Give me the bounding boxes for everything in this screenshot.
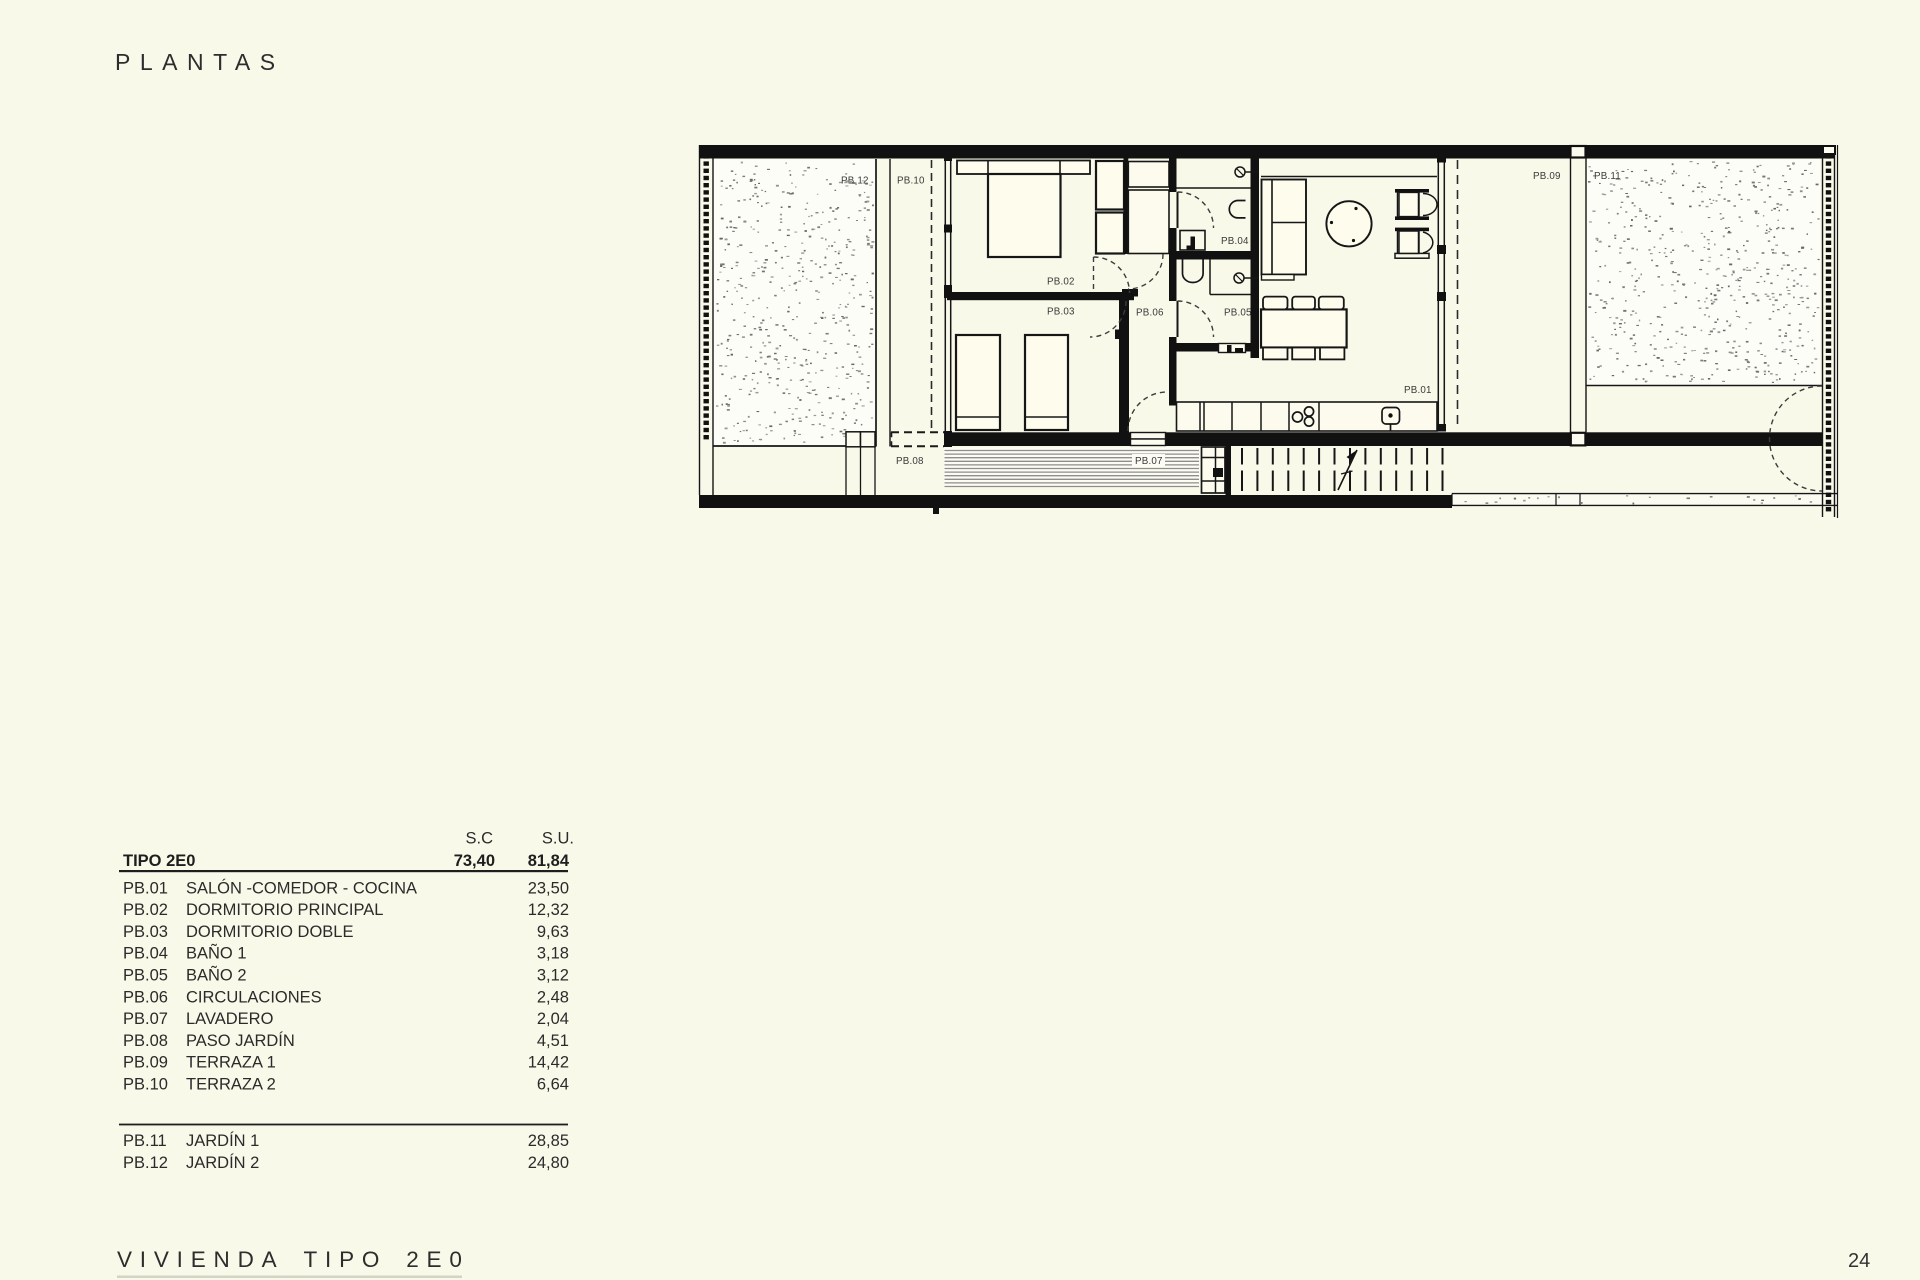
svg-text:PB.01: PB.01	[1404, 385, 1432, 396]
svg-text:PB.09: PB.09	[123, 1054, 168, 1072]
svg-text:PB.12: PB.12	[841, 175, 869, 186]
svg-text:PB.07: PB.07	[1135, 456, 1163, 467]
svg-text:PB.11: PB.11	[123, 1132, 167, 1150]
svg-text:PB.03: PB.03	[123, 923, 168, 941]
svg-text:PB.01: PB.01	[123, 879, 168, 897]
svg-text:PB.12: PB.12	[123, 1154, 168, 1172]
svg-text:PLANTAS: PLANTAS	[115, 49, 285, 75]
svg-text:PB.06: PB.06	[123, 988, 168, 1006]
svg-text:PB.04: PB.04	[123, 945, 168, 963]
svg-text:PB.04: PB.04	[1221, 236, 1249, 247]
svg-text:DORMITORIO PRINCIPAL: DORMITORIO PRINCIPAL	[186, 901, 383, 919]
svg-text:PB.08: PB.08	[123, 1032, 168, 1050]
svg-text:14,42: 14,42	[528, 1054, 569, 1072]
svg-text:TIPO 2E0: TIPO 2E0	[123, 852, 195, 870]
svg-text:S.U.: S.U.	[542, 830, 574, 848]
svg-text:3,12: 3,12	[537, 967, 569, 985]
svg-text:PB.03: PB.03	[1047, 307, 1075, 318]
svg-text:81,84: 81,84	[528, 852, 570, 870]
svg-text:S.C: S.C	[465, 830, 493, 848]
svg-text:3,18: 3,18	[537, 945, 569, 963]
svg-text:PB.09: PB.09	[1533, 171, 1561, 182]
svg-text:6,64: 6,64	[537, 1076, 569, 1094]
svg-text:CIRCULACIONES: CIRCULACIONES	[186, 988, 322, 1006]
svg-text:JARDÍN 1: JARDÍN 1	[186, 1131, 259, 1150]
svg-text:TERRAZA 2: TERRAZA 2	[186, 1076, 276, 1094]
svg-text:PB.05: PB.05	[123, 967, 168, 985]
svg-text:2,48: 2,48	[537, 988, 569, 1006]
svg-text:PB.02: PB.02	[1047, 277, 1075, 288]
svg-text:24,80: 24,80	[528, 1154, 569, 1172]
svg-text:PB.07: PB.07	[123, 1010, 168, 1028]
svg-text:PB.10: PB.10	[897, 175, 925, 186]
svg-text:23,50: 23,50	[528, 879, 569, 897]
svg-text:TERRAZA 1: TERRAZA 1	[186, 1054, 276, 1072]
svg-text:28,85: 28,85	[528, 1132, 569, 1150]
svg-text:12,32: 12,32	[528, 901, 569, 919]
svg-text:73,40: 73,40	[454, 852, 495, 870]
svg-text:24: 24	[1848, 1250, 1870, 1272]
svg-text:PB.10: PB.10	[123, 1076, 168, 1094]
svg-text:SALÓN -COMEDOR - COCINA: SALÓN -COMEDOR - COCINA	[186, 878, 417, 897]
svg-text:PB.08: PB.08	[896, 456, 924, 467]
svg-text:PB.06: PB.06	[1136, 308, 1164, 319]
svg-text:LAVADERO: LAVADERO	[186, 1010, 274, 1028]
svg-text:PB.05: PB.05	[1224, 308, 1252, 319]
svg-text:4,51: 4,51	[537, 1032, 569, 1050]
svg-text:VIVIENDA TIPO 2E0: VIVIENDA TIPO 2E0	[117, 1247, 470, 1272]
svg-text:BAÑO 2: BAÑO 2	[186, 965, 247, 985]
svg-text:PB.02: PB.02	[123, 901, 168, 919]
svg-text:2,04: 2,04	[537, 1010, 569, 1028]
svg-text:PASO JARDÍN: PASO JARDÍN	[186, 1031, 295, 1050]
svg-text:9,63: 9,63	[537, 923, 569, 941]
svg-text:BAÑO 1: BAÑO 1	[186, 943, 247, 963]
svg-text:DORMITORIO DOBLE: DORMITORIO DOBLE	[186, 923, 353, 941]
svg-text:PB.11: PB.11	[1594, 171, 1621, 182]
svg-text:JARDÍN 2: JARDÍN 2	[186, 1153, 259, 1172]
